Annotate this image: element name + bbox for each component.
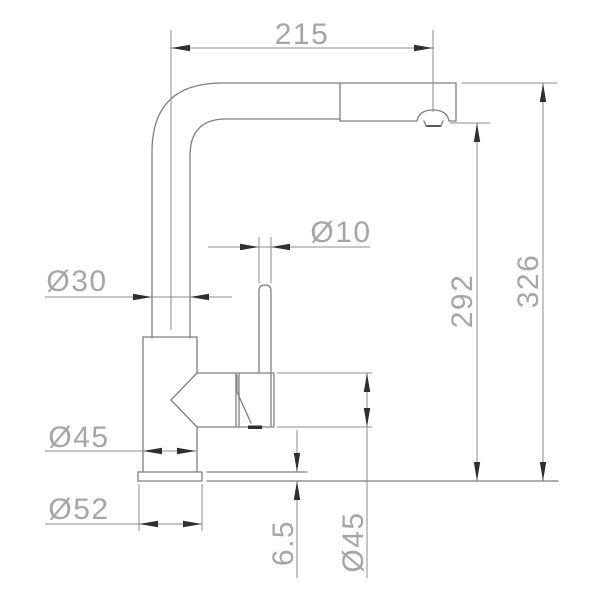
arrow-d45-housing-top: [364, 373, 370, 392]
label-riser-diameter: Ø30: [46, 265, 107, 298]
arrow-292-bottom: [474, 462, 480, 481]
arrow-326-top: [540, 83, 546, 102]
arrow-215-right: [414, 45, 433, 51]
arrow-d10-right: [271, 244, 290, 250]
label-base-flange-thickness: 6.5: [267, 520, 300, 566]
arrow-d30-left: [133, 294, 152, 300]
dimension-lines: [45, 30, 557, 578]
label-spout-reach: 215: [275, 18, 330, 51]
faucet-outline: [138, 83, 558, 481]
arrow-d10-left: [240, 244, 259, 250]
arrow-d45-body-right: [177, 448, 196, 454]
handle-rod-cap: [259, 285, 271, 291]
faucet-dimension-drawing: 215 Ø30 Ø10 Ø45 Ø52 292 326 6.5 Ø45: [0, 0, 600, 600]
arrow-d52-left: [139, 521, 158, 527]
arrow-326-bottom: [540, 462, 546, 481]
arrow-d52-right: [183, 521, 202, 527]
label-body-diameter: Ø45: [48, 421, 109, 454]
label-handle-rod-diameter: Ø10: [310, 216, 371, 249]
label-overall-height: 326: [512, 254, 545, 309]
arrow-d45-housing-bottom: [364, 408, 370, 427]
handle-cone: [171, 373, 197, 427]
label-base-flange-diameter: Ø52: [48, 493, 109, 526]
base-flange: [138, 472, 202, 481]
lever-seal-mark: [248, 426, 262, 430]
arrow-65-up: [294, 481, 300, 500]
arrow-d45-body-left: [143, 448, 162, 454]
arrow-65-down: [294, 453, 300, 472]
label-handle-housing-diameter: Ø45: [337, 511, 370, 572]
technical-drawing-canvas: 215 Ø30 Ø10 Ø45 Ø52 292 326 6.5 Ø45: [0, 0, 600, 600]
label-spout-outlet-height: 292: [446, 274, 479, 329]
arrow-215-left: [171, 45, 190, 51]
spray-head-outline: [449, 83, 456, 121]
arrow-292-top: [474, 123, 480, 142]
arrow-d30-right: [190, 294, 209, 300]
